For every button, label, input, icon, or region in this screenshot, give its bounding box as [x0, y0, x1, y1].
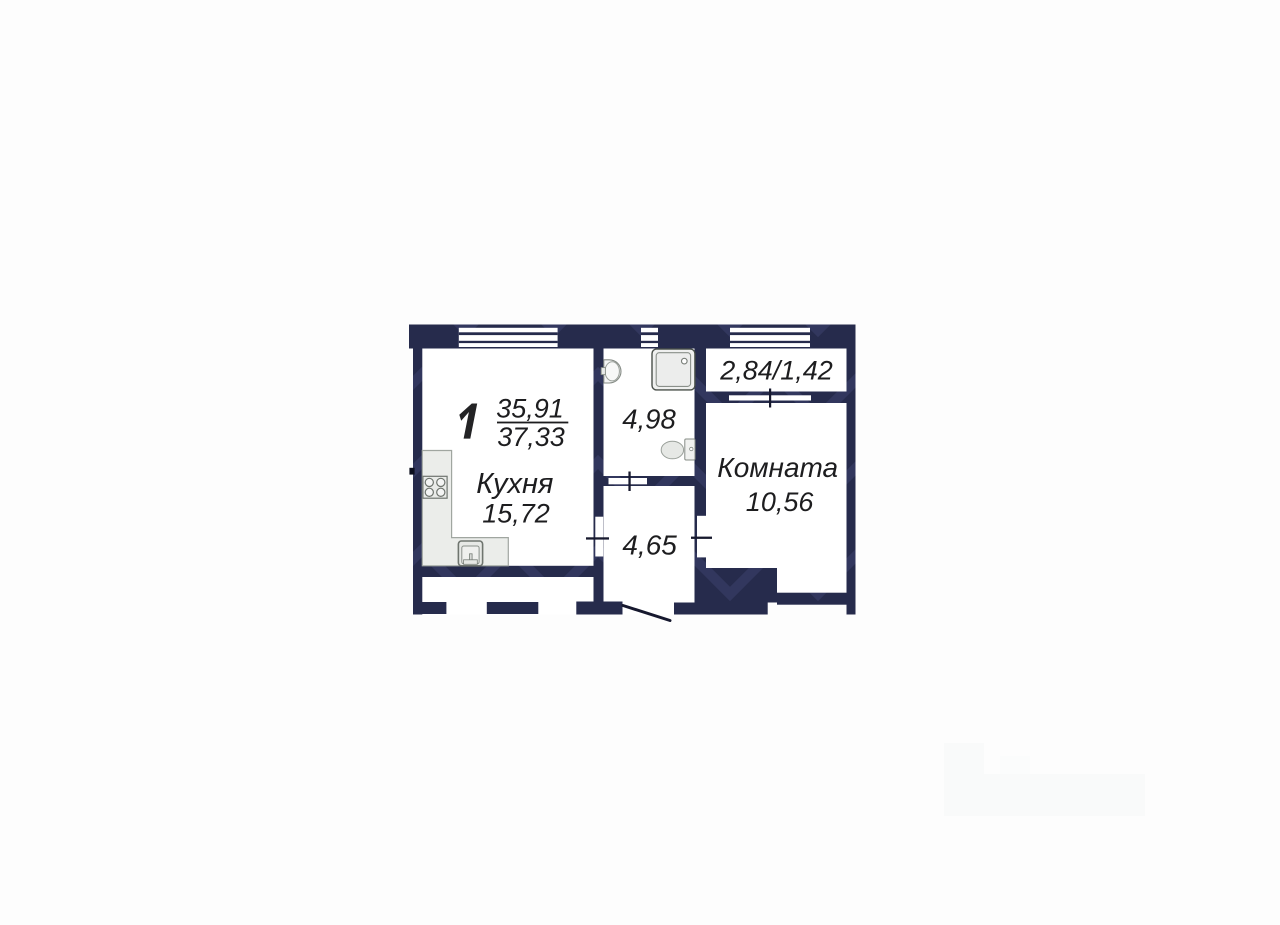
svg-text:35,91: 35,91 [496, 393, 564, 423]
svg-text:15,72: 15,72 [482, 499, 550, 529]
svg-text:Комната: Комната [717, 452, 838, 483]
svg-text:37,33: 37,33 [497, 422, 565, 452]
svg-text:Кухня: Кухня [476, 468, 553, 500]
svg-text:2,84/1,42: 2,84/1,42 [719, 356, 833, 386]
svg-text:4,65: 4,65 [622, 530, 677, 561]
svg-text:4,98: 4,98 [622, 404, 676, 435]
svg-text:10,56: 10,56 [746, 487, 815, 517]
